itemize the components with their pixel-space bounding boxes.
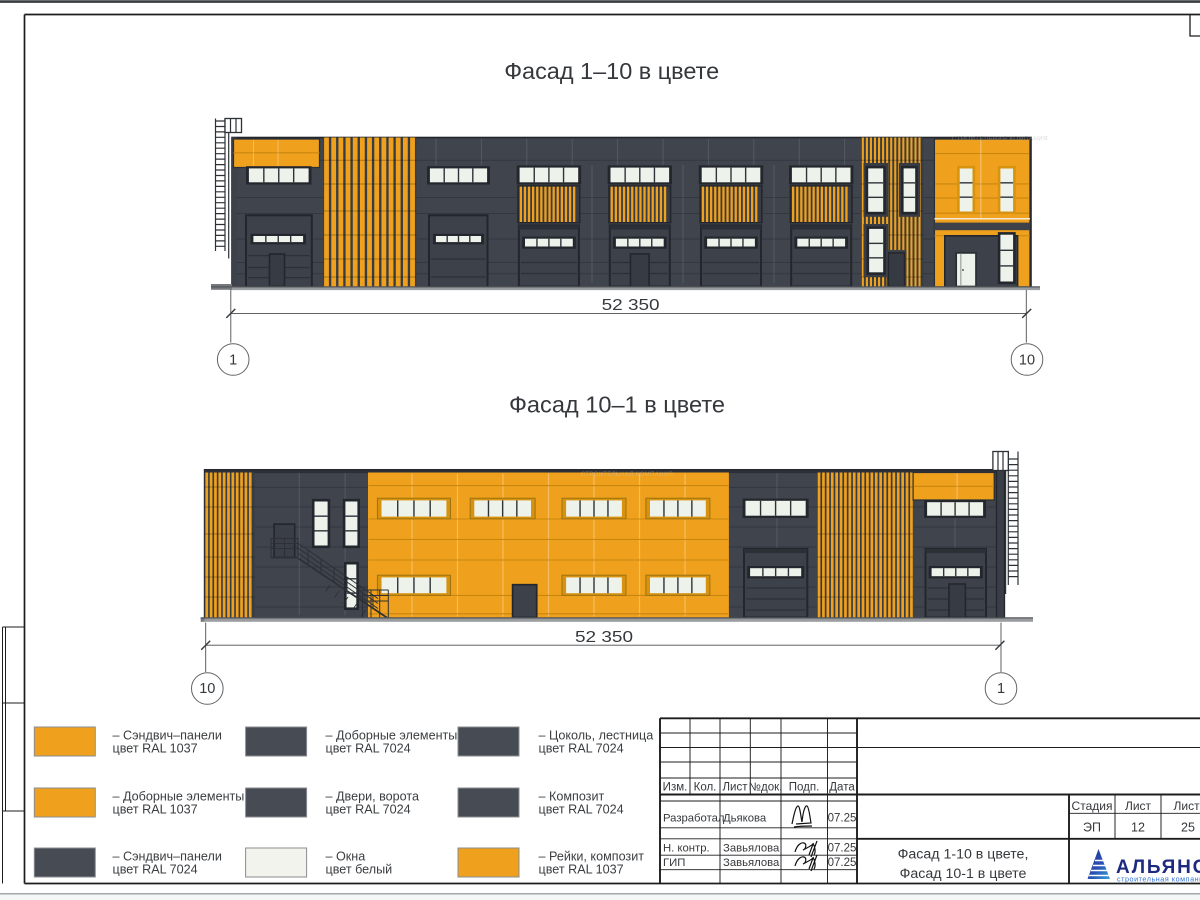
svg-text:Подп.: Подп. (789, 782, 820, 794)
svg-text:Разработал: Разработал (663, 813, 725, 825)
svg-text:07.25: 07.25 (828, 813, 857, 825)
svg-text:Листов: Листов (1174, 799, 1200, 813)
svg-text:1: 1 (997, 681, 1005, 697)
svg-text:Лист: Лист (1125, 799, 1152, 813)
svg-text:10: 10 (199, 681, 215, 697)
svg-text:цвет RAL 1037: цвет RAL 1037 (539, 863, 624, 877)
svg-text:25: 25 (1181, 820, 1195, 834)
svg-text:1: 1 (229, 353, 237, 369)
svg-text:52 350: 52 350 (602, 297, 660, 314)
svg-text:цвет белый: цвет белый (326, 863, 393, 877)
svg-text:Фасад 1–10 в цвете: Фасад 1–10 в цвете (504, 58, 719, 84)
svg-text:Стадия: Стадия (1072, 799, 1113, 813)
svg-text:10: 10 (1019, 353, 1035, 369)
svg-text:Изм.: Изм. (663, 782, 688, 794)
svg-text:СТРОИТЕЛЬНАЯ КОМПАНИЯ: СТРОИТЕЛЬНАЯ КОМПАНИЯ (581, 472, 673, 478)
svg-text:– Рейки, композит: – Рейки, композит (539, 849, 645, 863)
svg-text:цвет RAL 1037: цвет RAL 1037 (113, 742, 198, 756)
svg-text:– Композит: – Композит (539, 789, 605, 803)
svg-text:– Сэндвич–панели: – Сэндвич–панели (113, 728, 222, 742)
svg-text:цвет RAL 7024: цвет RAL 7024 (326, 742, 411, 756)
svg-text:52 350: 52 350 (575, 629, 633, 646)
svg-text:– Цоколь, лестница: – Цоколь, лестница (539, 728, 654, 742)
svg-text:Дьякова: Дьякова (723, 813, 767, 825)
svg-text:Завьялова: Завьялова (723, 842, 780, 854)
svg-text:– Окна: – Окна (326, 849, 366, 863)
svg-text:– Доборные элементы: – Доборные элементы (326, 728, 458, 742)
svg-text:– Двери, ворота: – Двери, ворота (326, 789, 420, 803)
svg-text:07.25: 07.25 (828, 857, 857, 869)
svg-text:Фасад 10-1 в цвете: Фасад 10-1 в цвете (900, 866, 1027, 882)
svg-text:Фасад 10–1 в цвете: Фасад 10–1 в цвете (509, 392, 725, 418)
svg-text:ГИП: ГИП (663, 857, 685, 869)
svg-text:цвет RAL 7024: цвет RAL 7024 (539, 742, 624, 756)
svg-text:07.25: 07.25 (828, 842, 857, 854)
svg-text:цвет RAL 1037: цвет RAL 1037 (113, 803, 198, 817)
svg-text:12: 12 (1131, 820, 1145, 834)
svg-text:цвет RAL 7024: цвет RAL 7024 (326, 803, 411, 817)
svg-text:Н. контр.: Н. контр. (663, 842, 710, 854)
svg-text:СТРОИТЕЛЬНАЯ КОМПАНИЯ: СТРОИТЕЛЬНАЯ КОМПАНИЯ (952, 136, 1048, 143)
svg-text:строительная компания: строительная компания (1117, 875, 1200, 884)
svg-text:– Сэндвич–панели: – Сэндвич–панели (113, 849, 222, 863)
svg-text:цвет RAL 7024: цвет RAL 7024 (539, 803, 624, 817)
svg-text:Дата: Дата (829, 782, 855, 794)
svg-text:– Доборные элементы: – Доборные элементы (113, 789, 245, 803)
svg-text:Кол.: Кол. (694, 782, 717, 794)
svg-text:№док.: №док. (749, 782, 783, 794)
svg-text:цвет RAL 7024: цвет RAL 7024 (113, 863, 198, 877)
svg-text:Завьялова: Завьялова (723, 857, 780, 869)
svg-text:Фасад 1-10 в цвете,: Фасад 1-10 в цвете, (898, 847, 1029, 863)
svg-text:ЭП: ЭП (1083, 820, 1101, 834)
svg-text:Лист: Лист (723, 782, 749, 794)
